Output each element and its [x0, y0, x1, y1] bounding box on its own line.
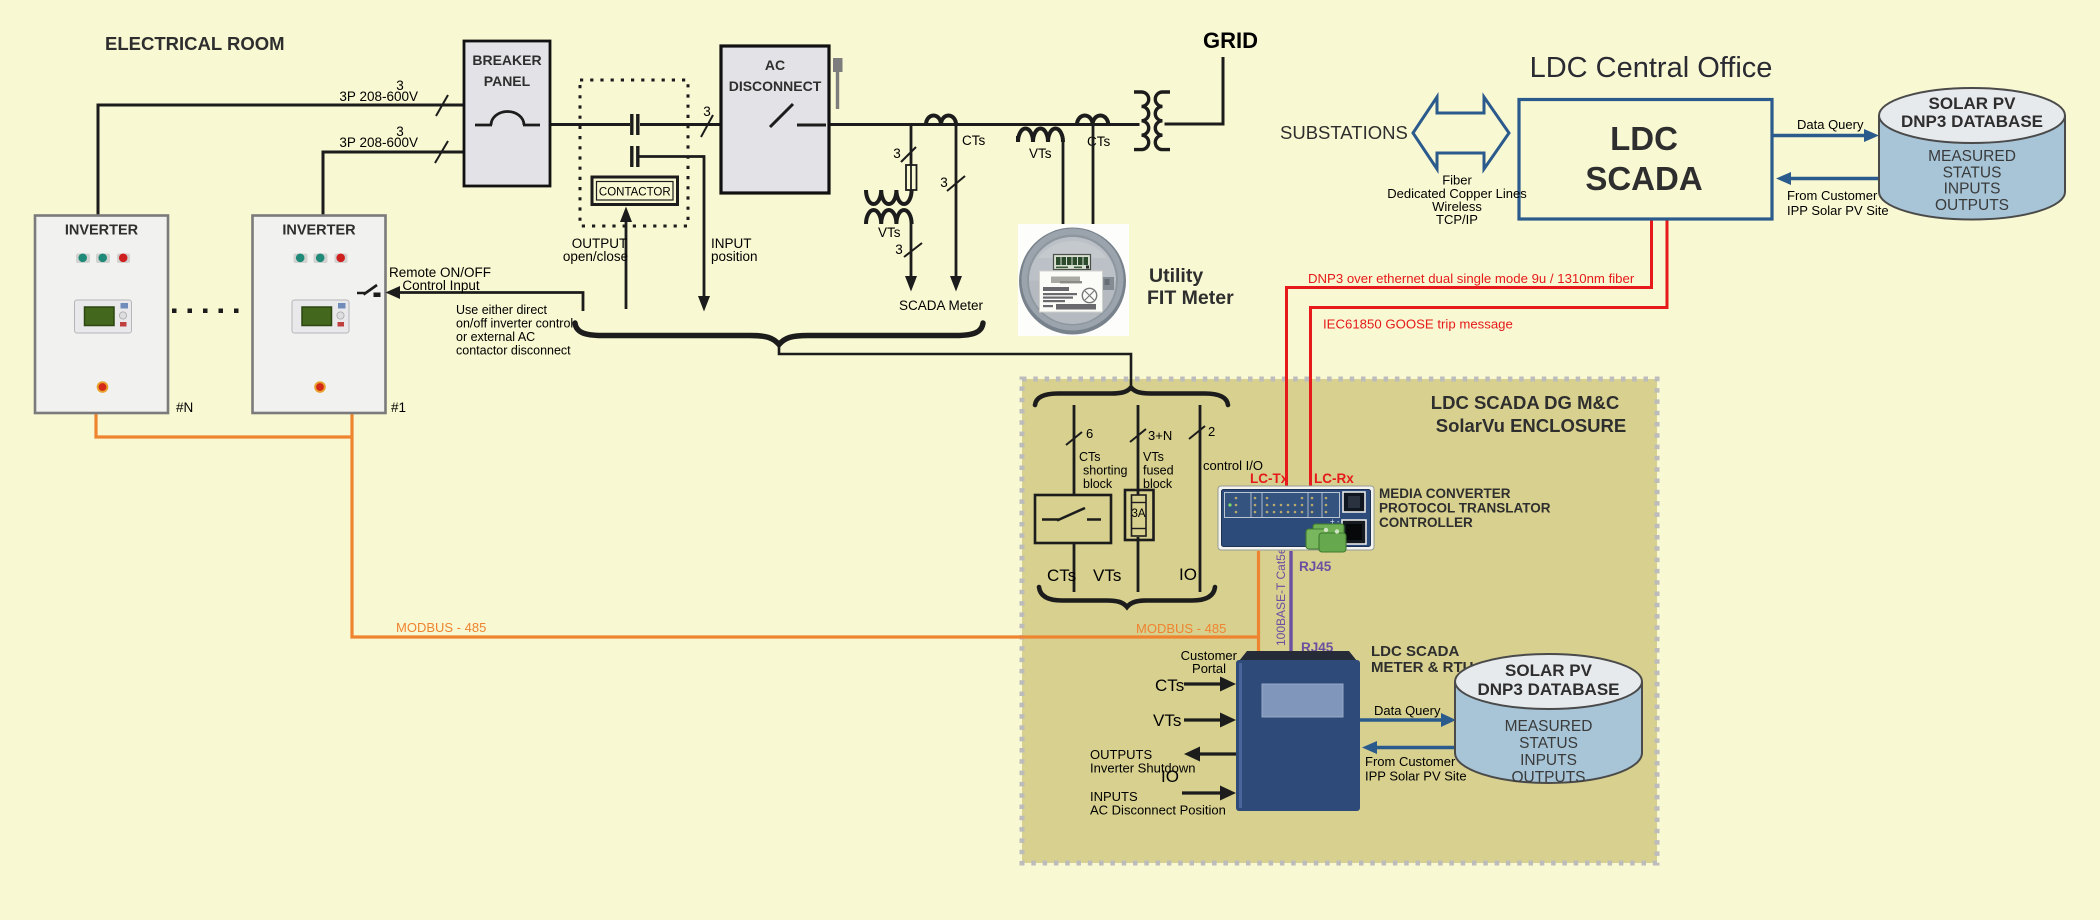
svg-text:CONTROLLER: CONTROLLER: [1379, 515, 1473, 530]
svg-text:LDC: LDC: [1610, 120, 1678, 157]
svg-text:SolarVu ENCLOSURE: SolarVu ENCLOSURE: [1436, 415, 1627, 436]
svg-text:Inverter Shutdown: Inverter Shutdown: [1090, 761, 1196, 776]
svg-text:IPP Solar PV Site: IPP Solar PV Site: [1787, 203, 1889, 218]
svg-text:contactor disconnect: contactor disconnect: [456, 344, 571, 358]
svg-text:3: 3: [940, 175, 948, 190]
svg-text:MODBUS - 485: MODBUS - 485: [1136, 621, 1226, 636]
svg-text:OUTPUTS: OUTPUTS: [1511, 769, 1585, 786]
svg-text:3: 3: [895, 242, 903, 257]
svg-text:3A: 3A: [1131, 508, 1145, 520]
svg-text:6: 6: [1086, 426, 1093, 441]
svg-text:100BASE-T Cat5e: 100BASE-T Cat5e: [1274, 547, 1288, 646]
svg-text:or external AC: or external AC: [456, 330, 535, 344]
svg-text:IO: IO: [1179, 565, 1197, 584]
svg-text:3: 3: [893, 146, 901, 161]
svg-text:SCADA Meter: SCADA Meter: [899, 298, 984, 313]
svg-text:CONTACTOR: CONTACTOR: [599, 187, 671, 199]
svg-text:FIT Meter: FIT Meter: [1147, 287, 1234, 309]
svg-text:CTs: CTs: [1079, 450, 1101, 464]
svg-text:LC-Rx: LC-Rx: [1314, 471, 1354, 486]
svg-text:VTs: VTs: [1143, 450, 1164, 464]
svg-text:AC Disconnect Position: AC Disconnect Position: [1090, 803, 1226, 818]
svg-text:VTs: VTs: [878, 225, 901, 240]
svg-text:3+N: 3+N: [1148, 428, 1172, 443]
svg-text:CTs: CTs: [1087, 134, 1110, 149]
svg-text:3P 208-600V: 3P 208-600V: [339, 135, 418, 150]
svg-text:MEASURED: MEASURED: [1505, 718, 1593, 735]
svg-text:STATUS: STATUS: [1519, 735, 1578, 752]
svg-text:SCADA: SCADA: [1585, 160, 1702, 197]
svg-text:on/off inverter control: on/off inverter control: [456, 317, 573, 331]
svg-text:3: 3: [703, 104, 711, 119]
svg-text:CTs: CTs: [1155, 676, 1184, 695]
svg-text:IPP Solar PV Site: IPP Solar PV Site: [1365, 769, 1467, 784]
svg-text:Utility: Utility: [1149, 265, 1203, 287]
svg-text:LC-Tx: LC-Tx: [1250, 471, 1289, 486]
svg-text:DISCONNECT: DISCONNECT: [729, 78, 822, 94]
svg-text:fused: fused: [1143, 464, 1174, 478]
svg-text:INPUTS: INPUTS: [1944, 181, 2001, 198]
svg-text:Control Input: Control Input: [402, 278, 480, 293]
svg-text:CTs: CTs: [1047, 566, 1076, 585]
svg-text:LDC SCADA: LDC SCADA: [1371, 643, 1459, 660]
svg-text:3: 3: [396, 124, 404, 139]
svg-text:GRID: GRID: [1203, 28, 1258, 53]
svg-text:3P 208-600V: 3P 208-600V: [339, 89, 418, 104]
svg-text:PROTOCOL TRANSLATOR: PROTOCOL TRANSLATOR: [1379, 501, 1551, 516]
svg-text:position: position: [711, 249, 758, 264]
svg-text:SOLAR PV: SOLAR PV: [1929, 94, 2017, 113]
svg-text:LDC SCADA DG M&C: LDC SCADA DG M&C: [1431, 392, 1619, 413]
svg-text:#N: #N: [176, 400, 193, 415]
svg-text:Use either direct: Use either direct: [456, 303, 548, 317]
svg-text:SOLAR PV: SOLAR PV: [1505, 661, 1593, 680]
svg-text:LDC Central Office: LDC Central Office: [1530, 52, 1773, 84]
svg-text:MEASURED: MEASURED: [1928, 148, 2016, 165]
svg-text:IO: IO: [1161, 767, 1179, 786]
svg-text:2: 2: [1208, 424, 1215, 439]
svg-text:From Customer: From Customer: [1787, 188, 1878, 203]
svg-text:STATUS: STATUS: [1943, 165, 2002, 182]
svg-text:open/close: open/close: [563, 249, 628, 264]
svg-text:DNP3 DATABASE: DNP3 DATABASE: [1901, 112, 2043, 131]
svg-text:VTs: VTs: [1029, 146, 1052, 161]
svg-text:shorting: shorting: [1083, 464, 1128, 478]
svg-text:VTs: VTs: [1153, 711, 1181, 730]
svg-text:From Customer: From Customer: [1365, 754, 1456, 769]
svg-text:block: block: [1083, 477, 1113, 491]
svg-text:Portal: Portal: [1192, 661, 1226, 676]
svg-text:RJ45: RJ45: [1299, 559, 1332, 574]
svg-text:SUBSTATIONS: SUBSTATIONS: [1280, 122, 1408, 143]
svg-text:CTs: CTs: [962, 133, 985, 148]
svg-text:OUTPUTS: OUTPUTS: [1935, 197, 2009, 214]
svg-text:BREAKER: BREAKER: [472, 52, 541, 68]
svg-text:PANEL: PANEL: [484, 73, 531, 89]
svg-text:ELECTRICAL ROOM: ELECTRICAL ROOM: [105, 33, 285, 54]
svg-text:DNP3 over ethernet dual single: DNP3 over ethernet dual single mode 9u /…: [1308, 271, 1635, 286]
svg-text:MEDIA CONVERTER: MEDIA CONVERTER: [1379, 486, 1511, 501]
svg-text:#1: #1: [391, 400, 406, 415]
svg-text:VTs: VTs: [1093, 566, 1121, 585]
svg-text:AC: AC: [765, 57, 785, 73]
svg-text:Data Query: Data Query: [1374, 703, 1441, 718]
svg-text:IEC61850 GOOSE trip message: IEC61850 GOOSE trip message: [1323, 317, 1513, 332]
svg-text:INPUTS: INPUTS: [1520, 752, 1577, 769]
svg-text:DNP3 DATABASE: DNP3 DATABASE: [1478, 680, 1620, 699]
svg-text:Data Query: Data Query: [1797, 117, 1864, 132]
svg-text:TCP/IP: TCP/IP: [1436, 212, 1478, 227]
svg-text:3: 3: [396, 78, 404, 93]
svg-text:MODBUS - 485: MODBUS - 485: [396, 620, 486, 635]
